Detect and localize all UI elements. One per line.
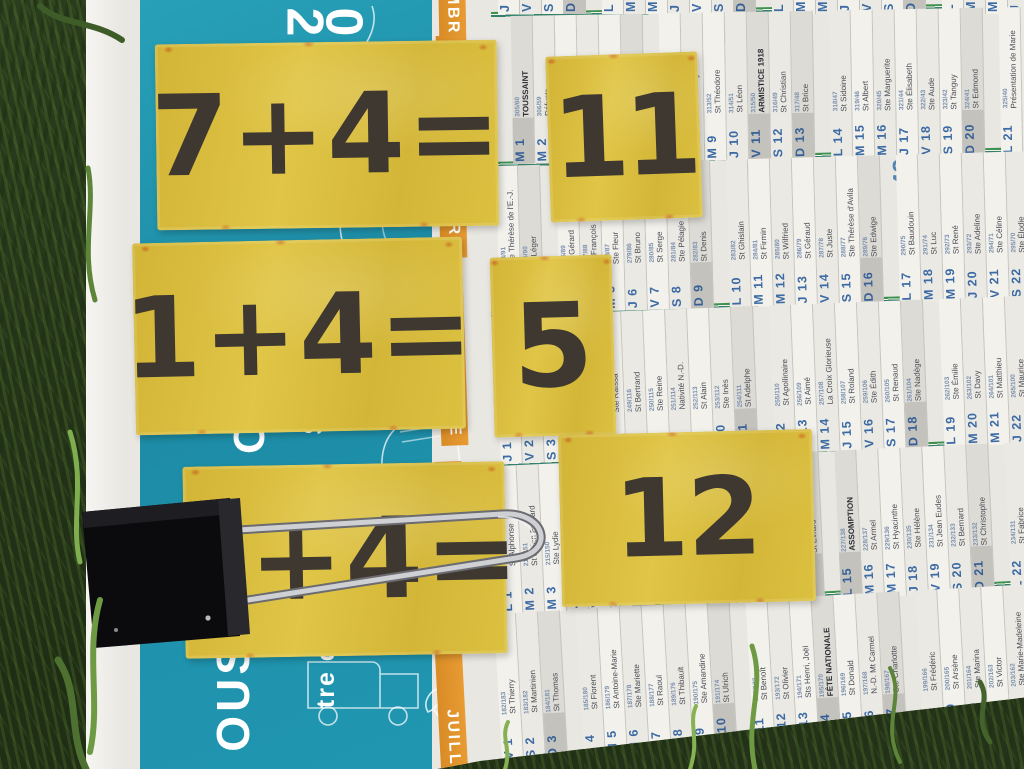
saint-name: Ste Marina <box>972 649 983 688</box>
day-number: M 18 <box>921 256 943 303</box>
day-strip-text: 294/71Ste Céline <box>984 152 1008 255</box>
day-number: M 15 <box>852 112 874 158</box>
day-strip-text: 319/46St Albert <box>851 10 874 112</box>
day-strip: 295/70Ste ÉlodieS 22 <box>1006 151 1024 300</box>
day-number: M 14 <box>817 405 840 452</box>
saint-name: St Victor <box>994 657 1005 688</box>
day-number: S 3 <box>542 0 563 14</box>
saint-name: St Jean Eudes <box>933 495 944 547</box>
day-strip-text: 275/90St Léger <box>518 165 542 268</box>
day-number: D 17 <box>883 693 907 740</box>
day-number: J 8 <box>668 0 689 14</box>
day-number: L 19 <box>943 400 966 447</box>
day-strip-text: 283/82St Ghislain <box>726 159 750 262</box>
day-number: J 17 <box>896 111 918 157</box>
saint-name: Ste Mariette <box>632 664 643 708</box>
saint-name: St Benoît <box>758 667 769 700</box>
saint-name: Ste Amandine <box>697 654 709 704</box>
binder-clip <box>58 468 598 683</box>
saint-name: Ste Marguerite <box>882 58 892 111</box>
day-strip-text: 323/42St Tanguy <box>939 8 962 110</box>
day-strip-text: 259/106Ste Édith <box>857 301 882 404</box>
saint-name: St Arsène <box>950 655 961 690</box>
day-number: M 20 <box>965 399 988 446</box>
day-strip-text: 286/79St Géraud <box>792 157 816 260</box>
saint-name: St Firmin <box>759 227 769 259</box>
saint-name: St Juste <box>825 229 835 258</box>
day-strip-text: 289/76Ste Edwige <box>858 155 882 258</box>
day-strip-text: 255/110St Apollinaire <box>769 305 794 408</box>
day-number: S 17 <box>883 402 906 449</box>
saint-name: Ste Édith <box>869 370 879 403</box>
day-strip-text: 287/78St Juste <box>814 157 838 260</box>
clip-glint <box>114 628 118 632</box>
saint-name: ARMISTICE 1918 <box>756 49 766 113</box>
day-strip-text: 261/104Ste Nadège <box>901 300 926 403</box>
saint-name: St Bernard <box>956 508 967 547</box>
flashcard-text: 11 <box>550 70 698 205</box>
day-number: J 15 <box>839 404 862 451</box>
day-number: S 19 <box>940 110 962 156</box>
saint-name: Ste Edwige <box>868 216 878 257</box>
saint-name: Ste Thérèse d'Avila <box>846 188 857 257</box>
day-number: M 19 <box>943 255 965 302</box>
day-strip-text: 258/107St Roland <box>835 302 860 405</box>
day-strip-text: 305/60TOUSSAINT <box>511 16 534 118</box>
saint-name: Ste Adeline <box>972 213 982 254</box>
day-number: M 19 <box>943 690 967 737</box>
saint-name: St Bruno <box>633 232 643 263</box>
day-strip-text: 315/50ARMISTICE 1918 <box>747 12 770 114</box>
day-number: V 19 <box>927 548 950 595</box>
day-number: V 2 <box>520 0 541 14</box>
saint-name: St Matthieu <box>994 357 1005 398</box>
day-strip-text: 291/74St Luc <box>918 154 942 257</box>
day-strip: M 7 <box>646 0 668 14</box>
saint-name: TOUSSAINT <box>521 71 531 117</box>
flashcard-text: 5 <box>511 277 595 414</box>
saint-name: Ste Charlotte <box>889 646 901 693</box>
day-number: L 4 <box>581 710 605 757</box>
saint-name: St Alain <box>699 382 709 409</box>
saint-name: St Edmond <box>971 69 981 109</box>
saint-name: Ste Inès <box>721 379 731 409</box>
day-number: V 18 <box>918 111 940 157</box>
saint-name: St Aimé <box>803 377 813 405</box>
saint-name: St Baudouin <box>906 212 916 256</box>
saint-name: Ste Élodie <box>1017 216 1024 253</box>
day-strip-text: 262/103Ste Émilie <box>939 298 964 401</box>
day-strip-text: 320/45Ste Marguerite <box>873 9 896 111</box>
day-number: L 11 <box>751 701 775 748</box>
saint-name: St Raoul <box>655 675 666 706</box>
saint-name: St Hyacinthe <box>890 503 901 549</box>
saint-name: St Géraud <box>803 222 813 259</box>
day-number: J 13 <box>795 259 817 306</box>
flashcard-text: 12 <box>612 454 761 583</box>
day-number: J 18 <box>905 549 928 596</box>
saint-name: St Davy <box>973 370 983 398</box>
saint-name: La Croix Glorieuse <box>823 338 835 405</box>
day-strip-text: 316/49St Christian <box>769 11 792 113</box>
day-number: D 4 <box>564 0 585 14</box>
saint-name: Sts Henri, Joël <box>801 645 813 697</box>
saint-name: St Léon <box>735 85 744 113</box>
day-number: J 6 <box>625 264 647 311</box>
day-number: M 7 <box>646 0 667 14</box>
day-strip: 325/40Présentation de MarieL 21 <box>999 7 1024 155</box>
saint-name: St Denis <box>699 231 709 261</box>
day-number: S 8 <box>669 263 691 310</box>
day-number: J 1 <box>498 0 519 14</box>
day-strip-text: 254/111St Adelphe <box>731 306 756 409</box>
day-number: S 20 <box>949 547 972 594</box>
day-number: L 14 <box>830 112 852 158</box>
flashcard-answer-11: 11 <box>545 51 703 222</box>
day-strip-text: 264/101St Matthieu <box>983 297 1008 400</box>
day-number: M 20 <box>965 689 989 736</box>
day-number: S 16 <box>861 695 885 742</box>
day-strip: L 5 <box>602 0 624 14</box>
day-strip-text: 256/109St Aimé <box>791 304 816 407</box>
day-strip-text: 325/40Présentation de Marie <box>999 7 1022 109</box>
saint-name: St Renaud <box>890 364 900 402</box>
day-number: D 20 <box>962 110 984 156</box>
day-number: S 15 <box>839 258 861 305</box>
day-strip: 324/41St EdmondD 20 <box>961 8 986 156</box>
saint-name: Ste Émilie <box>950 363 960 399</box>
day-number: D 9 <box>691 262 713 309</box>
day-number: D 3 <box>543 712 567 759</box>
day-strip-text: 250/115Ste Reine <box>643 310 668 413</box>
day-number: J 7 <box>647 707 671 754</box>
day-strip: V 2 <box>520 0 542 14</box>
day-strip-text: 288/77Ste Thérèse d'Avila <box>836 156 860 259</box>
day-number: S 22 <box>1009 253 1024 300</box>
day-number: V 21 <box>987 254 1009 301</box>
day-number: D 18 <box>905 402 928 449</box>
day-number: M 13 <box>795 698 819 745</box>
day-strip-text: 292/73St René <box>940 153 964 256</box>
saint-name: St Fabrice <box>1016 507 1024 544</box>
day-number: V 8 <box>669 705 693 752</box>
day-strip-text: 284/81St Firmin <box>748 158 772 261</box>
day-number: V 7 <box>647 263 669 310</box>
saint-name: St Brice <box>801 84 810 112</box>
day-strip: 320/45Ste MargueriteM 16 <box>873 9 898 157</box>
saint-name: St Armel <box>868 520 878 551</box>
saint-name: St Ghislain <box>737 221 747 260</box>
day-strip: J 8 <box>668 0 690 14</box>
saint-name: St Christian <box>779 71 789 113</box>
flashcard-equation-1plus4: 1+4= <box>132 237 466 436</box>
saint-name: St Serge <box>655 231 665 262</box>
saint-name: Présentation de Marie <box>1008 30 1018 108</box>
day-number: S 12 <box>770 113 792 159</box>
day-strip-text: 295/70Ste Élodie <box>1006 151 1024 254</box>
saint-name: St Thibault <box>676 666 687 705</box>
day-strip-text: 290/75St Baudouin <box>896 154 920 257</box>
day-number: J 14 <box>817 697 841 744</box>
day-number: M 12 <box>773 699 797 746</box>
saint-name: St Adelphe <box>742 369 752 408</box>
day-strip: 323/42St TanguyS 19 <box>939 8 964 156</box>
day-number: M 16 <box>874 111 896 157</box>
saint-name: Ste Élisabeth <box>905 63 915 110</box>
saint-name: St Apollinaire <box>780 359 791 406</box>
day-number: J 21 <box>987 688 1011 735</box>
day-number: M 17 <box>883 550 906 597</box>
day-strip-text: 322/43Ste Aude <box>917 9 940 111</box>
day-number: M 6 <box>624 0 645 14</box>
flashcard-equation-7plus4: 7+4= <box>155 40 500 231</box>
saint-name: N.-D. Mt Carmel <box>867 636 879 694</box>
day-strip-text: 234/131St Fabrice <box>1004 442 1024 545</box>
day-strip-text: 253/112Ste Inès <box>709 307 734 410</box>
day-strip-text: 313/52St Théodore <box>703 12 726 114</box>
saint-name: Ste Thérèse de l'E.-J. <box>506 190 517 267</box>
day-strip: M 6 <box>624 0 646 14</box>
day-strip: 322/43Ste AudeV 18 <box>917 9 942 157</box>
day-strip: 319/46St AlbertM 15 <box>851 10 876 158</box>
saint-name: St Thierry <box>507 679 518 714</box>
day-number: M 16 <box>861 551 884 598</box>
saint-name: St Sidoine <box>839 75 849 112</box>
day-number: D 16 <box>861 257 883 304</box>
day-number: V 11 <box>748 114 770 160</box>
day-strip: 321/44Ste ÉlisabethJ 17 <box>895 9 920 157</box>
day-strip-text: 321/44Ste Élisabeth <box>895 9 918 111</box>
day-number: V 16 <box>861 403 884 450</box>
day-number: M 6 <box>625 708 649 755</box>
day-strip-text: 251/114Nativité N.-D. <box>665 309 690 412</box>
day-number: L 5 <box>602 0 623 14</box>
flashcard-text: 1+4= <box>122 267 476 404</box>
flashcard-text: 7+4= <box>150 68 503 203</box>
day-number: L 18 <box>921 691 945 738</box>
day-strip-text: 318/47St Sidoine <box>829 10 852 112</box>
day-strip-text: 265/100St Maurice <box>1005 296 1024 399</box>
day-strip: 317/48St BriceD 13 <box>791 11 816 159</box>
day-number: V 14 <box>817 259 839 306</box>
day-strip-text: 257/108La Croix Glorieuse <box>813 303 838 406</box>
day-strip-text: 252/113St Alain <box>687 308 712 411</box>
day-strip-text: 249/116St Bertrand <box>621 310 646 413</box>
day-strip: 318/47St SidoineL 14 <box>829 10 854 158</box>
day-strip: J 1 <box>498 0 520 14</box>
saint-name: St Albert <box>861 81 871 111</box>
saint-name: St René <box>951 225 961 254</box>
day-strip: D 4 <box>564 0 586 14</box>
day-number: L 10 <box>729 261 751 308</box>
day-strip-text: 260/105St Renaud <box>879 301 904 404</box>
saint-name: St Ulrich <box>720 672 731 703</box>
saint-name: St Antoine-Marie <box>609 649 621 709</box>
day-number: V 1 <box>500 715 524 762</box>
day-number: D 13 <box>792 113 814 159</box>
week-gap <box>586 0 602 14</box>
day-strip: 315/50ARMISTICE 1918V 11 <box>747 12 772 160</box>
day-strip-text: 314/51St Léon <box>725 12 748 114</box>
saint-name: St Théodore <box>713 69 723 113</box>
saint-name: Ste Aude <box>927 77 937 110</box>
day-number: J 10 <box>726 114 748 160</box>
day-number: M 21 <box>987 398 1010 445</box>
day-strip-text: 293/72Ste Adeline <box>962 152 986 255</box>
saint-name: Ste Reine <box>655 375 665 410</box>
day-number: J 22 <box>1009 398 1024 445</box>
saint-name: Nativité N.-D. <box>676 362 687 410</box>
day-strip-text: 317/48St Brice <box>791 11 814 113</box>
saint-name: Ste Fleur <box>611 231 621 264</box>
flashcard-answer-5: 5 <box>490 254 617 437</box>
saint-name: St Wilfried <box>781 222 791 259</box>
saint-name: St Tanguy <box>949 74 959 110</box>
day-number: M 9 <box>704 114 726 160</box>
day-strip: 313/52St ThéodoreM 9 <box>703 12 728 160</box>
saint-name: Ste Nadège <box>912 358 923 401</box>
saint-name: St Frédéric <box>928 651 939 691</box>
day-strip-text: 324/41St Edmond <box>961 8 984 110</box>
day-strip: 203/162Ste Marie-MadeleineV 22 <box>1003 584 1024 733</box>
saint-name: St Luc <box>929 232 939 255</box>
day-number: L 15 <box>839 552 862 599</box>
day-number: M 1 <box>512 118 534 164</box>
saint-name: St Roland <box>846 368 856 403</box>
day-strip: 314/51St LéonJ 10 <box>725 12 750 160</box>
day-strip: 305/60TOUSSAINTM 1 <box>511 16 536 164</box>
day-number: V 22 <box>1009 686 1024 733</box>
saint-name: St Olivier <box>780 666 791 699</box>
saint-name: St Maurice <box>1016 359 1024 398</box>
day-number: D 10 <box>713 703 737 750</box>
saint-name: Ste Hélène <box>912 508 923 548</box>
day-number: M 11 <box>751 260 773 307</box>
day-strip-text: 263/102St Davy <box>961 297 986 400</box>
day-number: S 2 <box>522 714 546 761</box>
saint-name: St Christophe <box>978 496 989 545</box>
day-number: V 15 <box>839 696 863 743</box>
saint-name: St Bertrand <box>632 371 643 412</box>
day-number: J 20 <box>965 254 987 301</box>
clip-glint <box>205 615 210 620</box>
day-number: L 17 <box>899 256 921 303</box>
day-number: M 5 <box>603 709 627 756</box>
day-strip: S 3 <box>542 0 564 14</box>
day-strip: 316/49St ChristianS 12 <box>769 11 794 159</box>
day-strip-text: 285/80St Wilfried <box>770 158 794 261</box>
saint-name: Ste Pélagie <box>677 221 687 262</box>
photo-scene: 2 0 ON SE OUS tre dé J 1V 2S 3D 4L 5M 6M… <box>0 0 1024 769</box>
day-number: L 21 <box>1000 109 1022 155</box>
saint-name: ASSOMPTION <box>845 497 856 551</box>
saint-name: Ste Céline <box>995 216 1005 253</box>
day-number: S 9 <box>691 704 715 751</box>
day-number: M 12 <box>773 260 795 307</box>
saint-name: St Donald <box>846 660 857 696</box>
